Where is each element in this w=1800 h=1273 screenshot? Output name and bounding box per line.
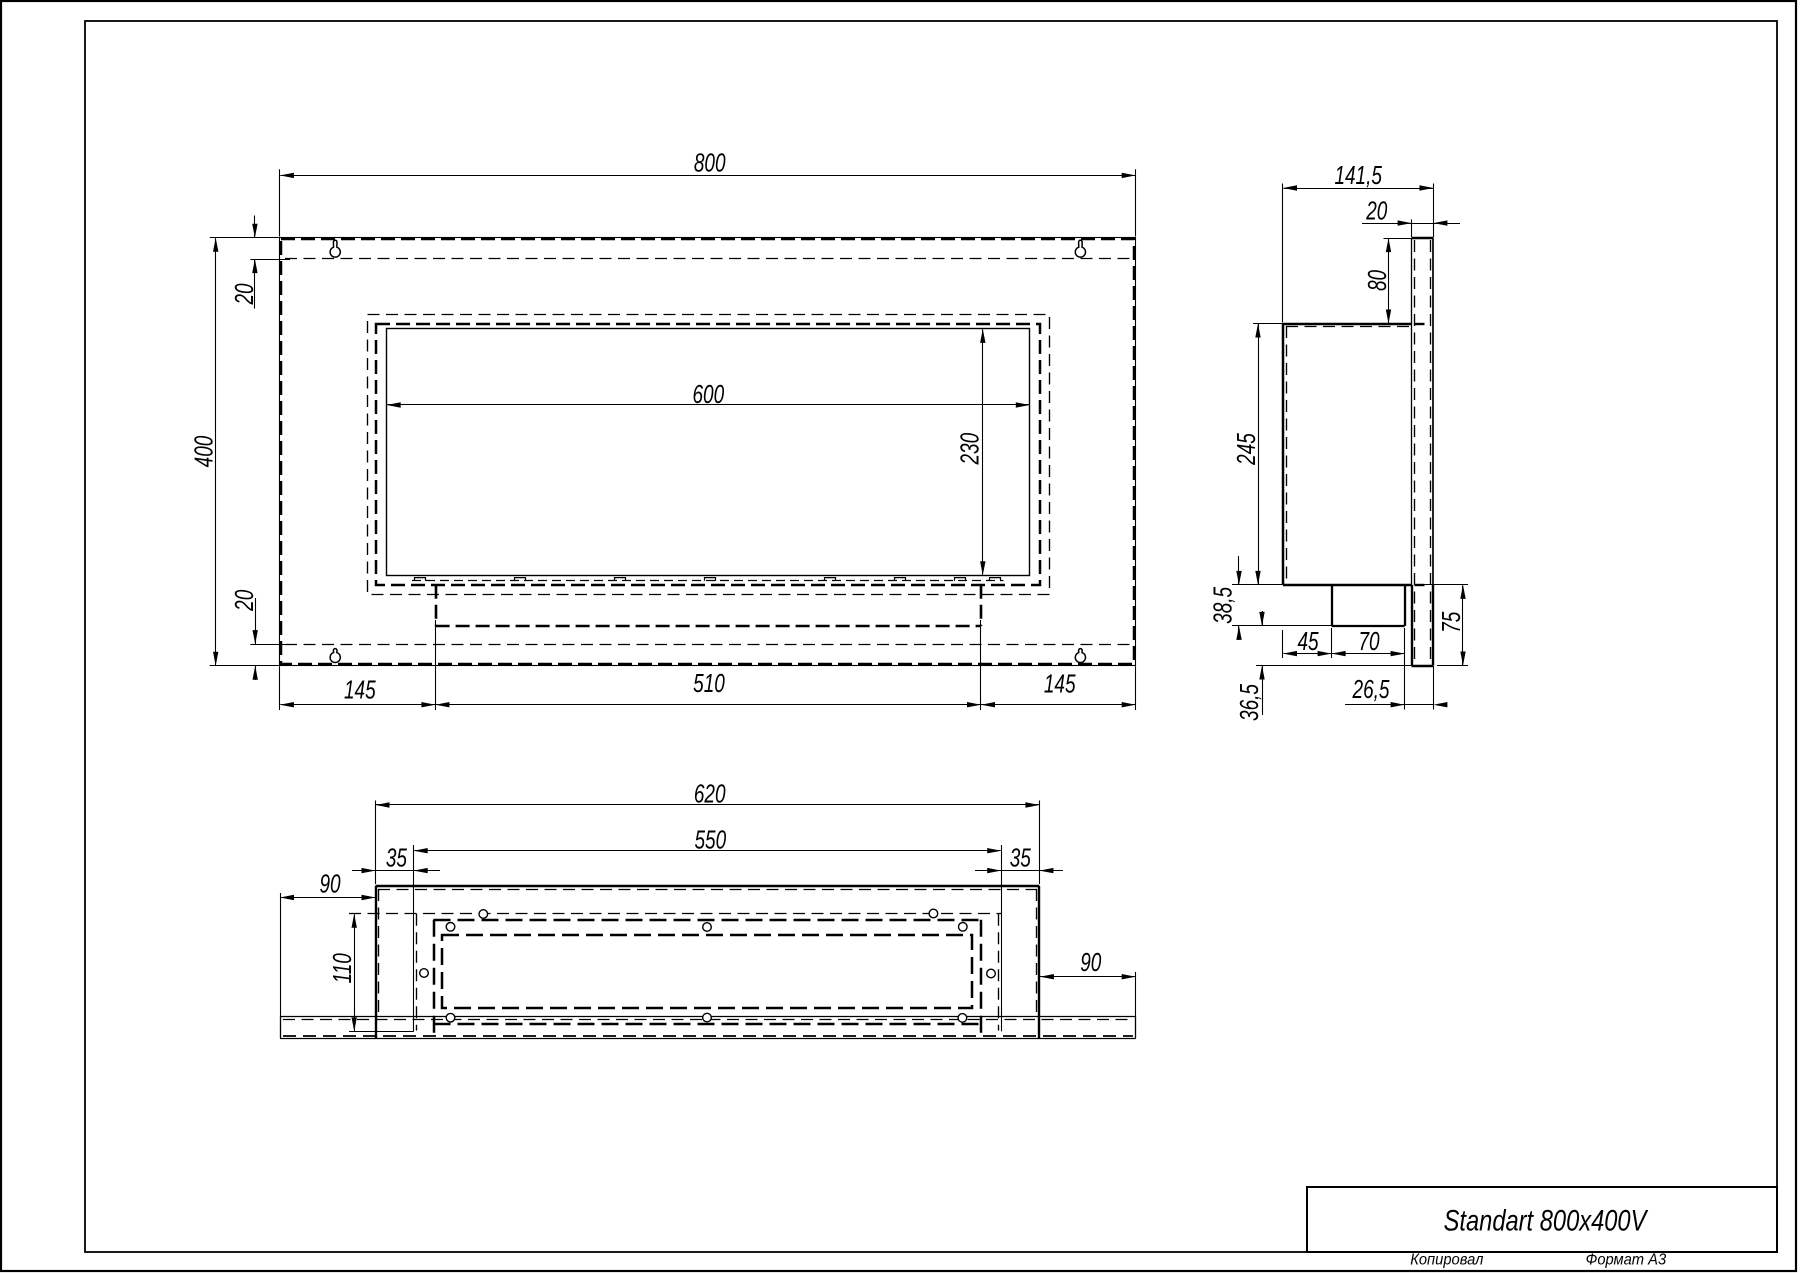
svg-text:75: 75 xyxy=(1436,611,1466,632)
svg-text:620: 620 xyxy=(694,779,726,809)
svg-text:141,5: 141,5 xyxy=(1334,160,1382,190)
svg-text:20: 20 xyxy=(229,589,259,611)
svg-text:800: 800 xyxy=(694,148,726,178)
svg-text:70: 70 xyxy=(1358,626,1379,656)
svg-text:90: 90 xyxy=(319,869,340,899)
svg-text:Standart 800x400V: Standart 800x400V xyxy=(1444,1204,1649,1237)
svg-text:35: 35 xyxy=(386,842,407,872)
svg-text:20: 20 xyxy=(229,283,259,305)
svg-text:245: 245 xyxy=(1231,433,1261,466)
svg-text:26,5: 26,5 xyxy=(1352,674,1390,704)
svg-text:230: 230 xyxy=(955,433,985,466)
svg-text:80: 80 xyxy=(1362,270,1392,291)
svg-text:145: 145 xyxy=(344,674,376,704)
svg-text:400: 400 xyxy=(189,435,219,467)
svg-text:Формат А3: Формат А3 xyxy=(1586,1251,1667,1268)
svg-text:36,5: 36,5 xyxy=(1234,684,1264,721)
svg-text:550: 550 xyxy=(694,825,726,855)
svg-text:38,5: 38,5 xyxy=(1208,587,1238,624)
svg-text:35: 35 xyxy=(1010,842,1031,872)
svg-text:Копировал: Копировал xyxy=(1410,1251,1484,1268)
svg-text:145: 145 xyxy=(1044,669,1076,699)
svg-text:600: 600 xyxy=(692,379,724,409)
svg-text:45: 45 xyxy=(1297,626,1318,656)
svg-text:510: 510 xyxy=(693,668,725,698)
svg-text:20: 20 xyxy=(1365,195,1387,225)
svg-text:90: 90 xyxy=(1080,947,1101,977)
svg-text:110: 110 xyxy=(327,953,357,984)
